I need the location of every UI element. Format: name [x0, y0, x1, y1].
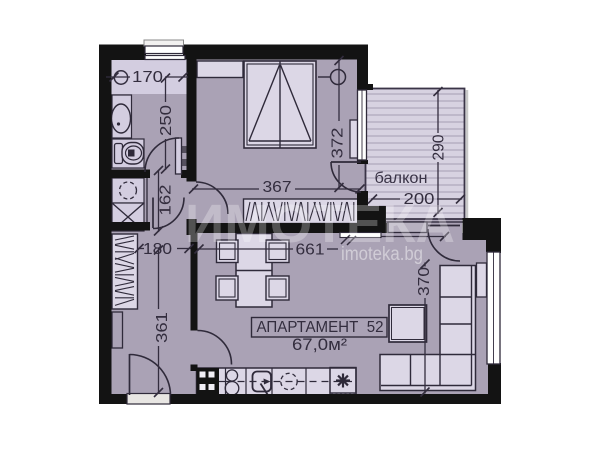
svg-text:67,0м²: 67,0м² [292, 336, 348, 354]
svg-text:балкон: балкон [375, 170, 428, 187]
svg-text:180: 180 [143, 241, 172, 258]
svg-text:290: 290 [431, 134, 448, 160]
svg-text:170: 170 [132, 69, 163, 86]
svg-text:370: 370 [416, 267, 433, 296]
svg-text:162: 162 [158, 184, 175, 215]
svg-text:372: 372 [330, 127, 347, 158]
svg-text:250: 250 [158, 105, 175, 136]
svg-text:imoteka.bg: imoteka.bg [341, 244, 423, 265]
svg-text:361: 361 [154, 312, 171, 343]
svg-text:АПАРТАМЕНТ 52: АПАРТАМЕНТ 52 [257, 319, 384, 336]
